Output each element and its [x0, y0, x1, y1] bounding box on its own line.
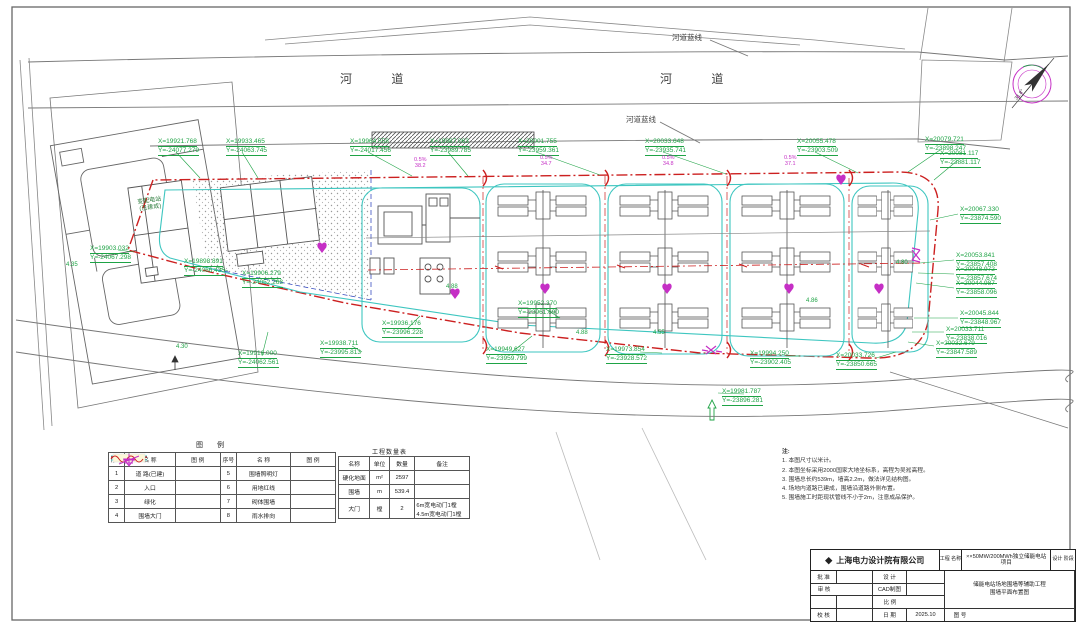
- date-label: 日 期: [873, 609, 907, 622]
- quantity-row: 围墙m 539.4: [339, 485, 470, 499]
- note-item: 3. 围墙总长约539m，墙高2.2m，做法详见结构图。: [782, 477, 914, 483]
- legend-row: 4围墙大门 8雨水排向: [109, 509, 336, 523]
- coord-label: X=19916.000Y=-24062.561: [238, 350, 279, 368]
- coord-label: X=19964.558Y=-24017.456: [350, 138, 391, 156]
- approve-label: 批 准: [811, 571, 837, 584]
- coord-label: X=19898.891Y=-24066.435: [184, 258, 225, 276]
- coord-label: X=19952.370Y=-23961.690: [518, 300, 559, 318]
- coord-label: X=20081.117Y=-23881.117: [940, 150, 981, 168]
- compass: 31.8°: [1012, 58, 1054, 108]
- note-item: 2. 本图坐标采用2000国家大地坐标系，高程为吴淞高程。: [782, 468, 929, 474]
- cad-value: [907, 584, 945, 597]
- cad-label: CAD制图: [873, 584, 907, 597]
- project-label: 工程 名称: [940, 550, 963, 570]
- coord-label: X=20044.987Y=-23858.096: [956, 280, 997, 298]
- coord-label: X=20045.844Y=-23848.967: [960, 310, 1001, 328]
- blank: [811, 596, 837, 609]
- coord-label: X=19933.465Y=-24063.745: [226, 138, 267, 156]
- design-label: 设 计: [873, 571, 907, 584]
- company-name-cell: ◆ 上海电力设计院有限公司: [811, 550, 940, 570]
- check-label: 校 核: [811, 609, 837, 622]
- coord-label: X=20033.648Y=-23935.741: [645, 138, 686, 156]
- check-value: [837, 609, 873, 622]
- project-name: ××50MW/200MWh独立储能电站项目: [962, 550, 1051, 570]
- left-boundary-lines: [20, 58, 52, 430]
- coord-label: X=19994.250Y=-23902.405: [750, 350, 791, 368]
- coord-label: X=19981.787Y=-23896.281: [722, 388, 763, 406]
- river-label-left: 河 道: [340, 70, 421, 87]
- coord-label: X=19949.627Y=-23959.799: [486, 346, 527, 364]
- notes-block: 注: 1. 本图尺寸以米计。 2. 本图坐标采用2000国家大地坐标系，高程为吴…: [782, 448, 929, 504]
- review-label: 审 核: [811, 584, 837, 597]
- coord-label: X=20032.679Y=-23847.589: [936, 340, 977, 358]
- approve-value: [837, 571, 873, 584]
- coord-label: X=19936.176Y=-23996.228: [382, 320, 423, 338]
- scale-label: 比 例: [873, 596, 907, 609]
- legend-row: 3绿化 7砌体围墙: [109, 495, 336, 509]
- slope-annotation: 0.5%34.7: [540, 156, 553, 168]
- river-label-right: 河 道: [660, 70, 741, 87]
- fig-no-label: 图 号: [945, 609, 975, 622]
- note-item: 1. 本图尺寸以米计。: [782, 458, 835, 464]
- review-value: [837, 584, 873, 597]
- coord-label: X=19987.063Y=-23989.785: [430, 138, 471, 156]
- company-name: 上海电力设计院有限公司: [836, 555, 924, 566]
- quantity-row: 硬化地面m² 2597: [339, 471, 470, 485]
- coord-label: X=19906.279Y=-24052.263: [242, 270, 283, 288]
- river-band: [28, 40, 1068, 149]
- slope-annotation: 0.5%37.1: [784, 156, 797, 168]
- drawing-sheet: 31.8° 河 道 河 道 河道蓝线 河道蓝线 变配电站 (已建成) X=199…: [0, 0, 1080, 627]
- spot-elevation: 4.86: [806, 298, 818, 304]
- company-logo: ◆: [825, 555, 832, 566]
- slope-annotation: 0.5%34.8: [662, 156, 675, 168]
- legend-table: 序号 名 称 图 例 序号 名 称 图 例 1道 路(已建) 5围墙照明灯 2入…: [108, 452, 336, 523]
- date-value: 2025.10: [907, 609, 945, 622]
- coord-label: X=19938.711Y=-23995.813: [320, 340, 361, 358]
- spot-elevation: 4.88: [576, 330, 588, 336]
- coord-label: X=20033.726Y=-23850.665: [836, 352, 877, 370]
- coord-label: X=19921.768Y=-24077.279: [158, 138, 199, 156]
- legend-row: 2入口 6用地红线: [109, 481, 336, 495]
- note-item: 5. 围墙施工时距现状管线不小于2m，注意成品保护。: [782, 495, 918, 501]
- drawing-title: 储能电站场地围墙等辅助工程 围墙平面布置图: [945, 571, 1075, 609]
- coord-label: X=20001.755Y=-23959.361: [518, 138, 559, 156]
- coord-label: X=20067.330Y=-23874.590: [960, 206, 1001, 224]
- spot-elevation: 4.35: [66, 262, 78, 268]
- legend-title: 图 例: [196, 440, 230, 450]
- spot-elevation: 4.30: [176, 344, 188, 350]
- coord-label: X=19973.854Y=-23928.572: [606, 346, 647, 364]
- note-item: 4. 场地内道路已建成，围墙沿道路外侧布置。: [782, 486, 899, 492]
- coord-label: X=20055.478Y=-23903.509: [797, 138, 838, 156]
- design-value: [907, 571, 945, 584]
- notes-title: 注:: [782, 449, 790, 455]
- slope-annotation: 0.5%38.2: [414, 158, 427, 170]
- drainage-arrow-symbol: [109, 453, 149, 467]
- small-arrow: [172, 356, 178, 370]
- blank: [837, 596, 873, 609]
- coord-label: X=19903.032Y=-24067.298: [90, 245, 131, 263]
- design-stage-label: 设计 阶段: [1051, 550, 1075, 570]
- battery-bays: [486, 184, 928, 356]
- quantity-table: 名称 单位 数量 备注 硬化地面m² 2597 围墙m 539.4 大门樘 2 …: [338, 456, 470, 519]
- fig-no-value: [975, 609, 1075, 622]
- quantity-table-title: 工程数量表: [372, 447, 407, 456]
- legend-row: 1道 路(已建) 5围墙照明灯: [109, 467, 336, 481]
- spot-elevation: 4.55: [653, 330, 665, 336]
- title-block: ◆ 上海电力设计院有限公司 工程 名称 ××50MW/200MWh独立储能电站项…: [810, 549, 1076, 622]
- spot-elevation: 4.80: [896, 260, 908, 266]
- cable-trench-line: [366, 231, 930, 238]
- compass-angle: 31.8°: [1014, 88, 1026, 101]
- river-blueline-label-top: 河道蓝线: [672, 32, 702, 43]
- pcs-equipment: [370, 194, 480, 294]
- quantity-row: 大门樘 2 6m宽电动门1樘 4.5m宽电动门1樘: [339, 499, 470, 519]
- entrance-arrow: [708, 400, 716, 420]
- river-blueline-label-bottom: 河道蓝线: [626, 114, 656, 125]
- spot-elevation: 4.88: [446, 284, 458, 290]
- scale-value: [907, 596, 945, 609]
